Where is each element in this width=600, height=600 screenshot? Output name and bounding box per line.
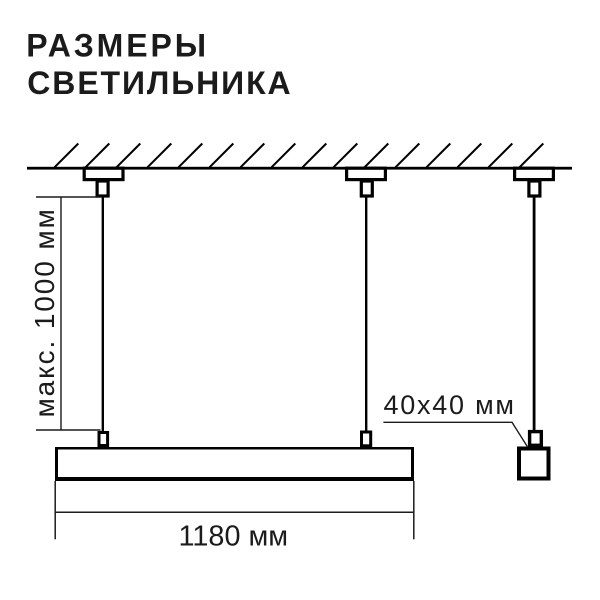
svg-text:40x40 мм: 40x40 мм	[384, 390, 516, 420]
svg-text:1180 мм: 1180 мм	[179, 521, 289, 553]
svg-text:макс. 1000 мм: макс. 1000 мм	[29, 207, 60, 417]
svg-text:РАЗМЕРЫ: РАЗМЕРЫ	[26, 28, 209, 64]
svg-text:СВЕТИЛЬНИКА: СВЕТИЛЬНИКА	[27, 65, 292, 101]
